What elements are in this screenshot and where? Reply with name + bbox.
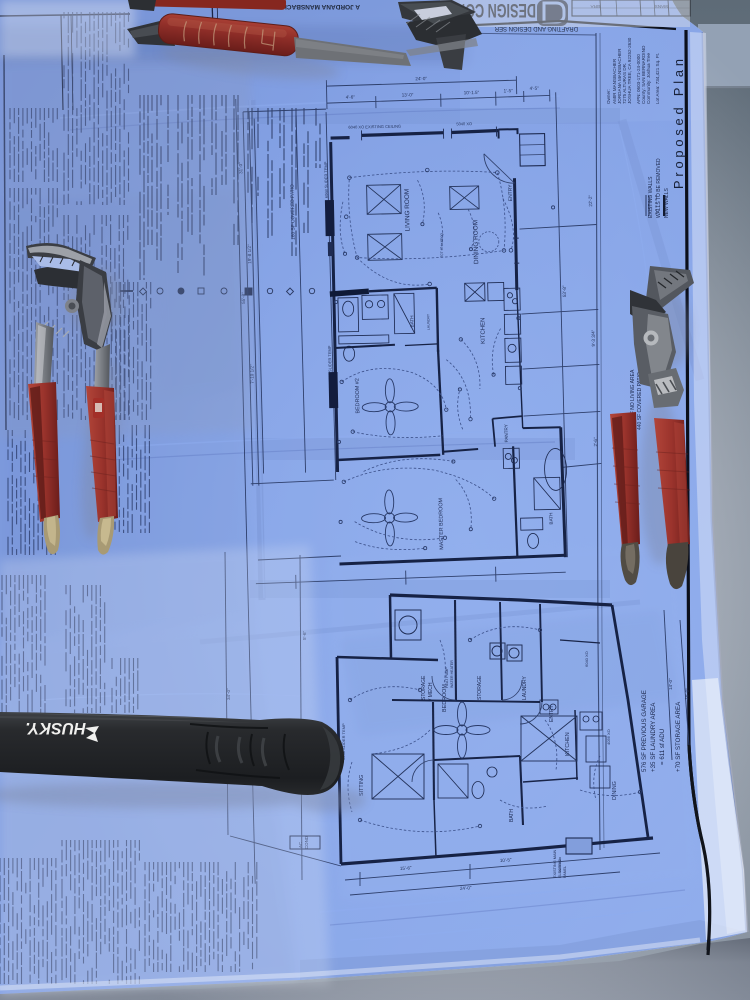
svg-text:HUSKY.: HUSKY.	[25, 719, 86, 737]
